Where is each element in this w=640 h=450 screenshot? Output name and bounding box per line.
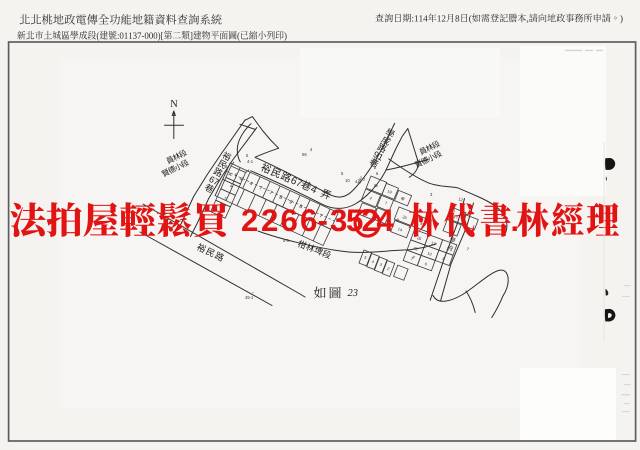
svg-text:5-1: 5-1 <box>283 238 290 243</box>
svg-text:45-1: 45-1 <box>245 295 254 300</box>
svg-text:4-1: 4-1 <box>247 159 254 164</box>
svg-text:56: 56 <box>302 152 307 157</box>
svg-text:10: 10 <box>345 178 350 183</box>
